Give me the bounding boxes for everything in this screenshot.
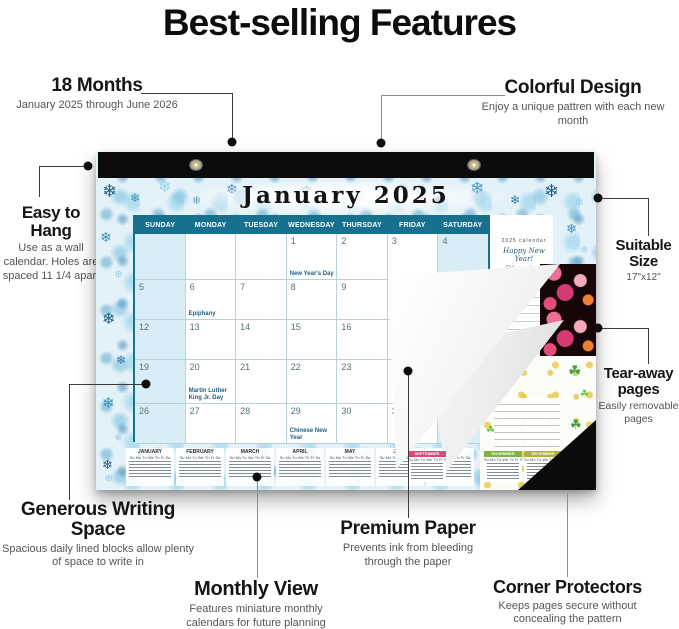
callout-premium-paper: Premium Paper Prevents ink from bleeding… [328, 519, 488, 569]
day-number: 20 [190, 362, 200, 372]
snowflake-icon: ❄ [104, 474, 113, 485]
day-cell: 21 [236, 360, 287, 404]
callout-heading: Monthly View [172, 579, 340, 600]
day-cell: 27 [186, 404, 237, 444]
connector-dot [594, 194, 603, 203]
day-cell: 29Chinese New Year [287, 404, 338, 444]
connector-line [381, 95, 505, 96]
day-number: 16 [341, 322, 351, 332]
snowflake-icon: ❄ [566, 222, 577, 235]
mini-day-row: Su Mo Tu We Th Fr Sa [326, 455, 374, 460]
day-number: 19 [139, 362, 149, 372]
month-title: January 2025 [96, 182, 596, 209]
mini-number-grid [329, 461, 371, 478]
day-number: 3 [392, 236, 397, 246]
callout-corner-protectors: Corner Protectors Keeps pages secure wit… [485, 578, 650, 627]
connector-line [69, 384, 146, 385]
mini-month: NOVEMBERSu Mo Tu We Th Fr Sa [484, 450, 522, 482]
mini-month: MARCHSu Mo Tu We Th Fr Sa [226, 448, 274, 486]
day-cell: 5 [135, 280, 186, 320]
day-number: 15 [291, 322, 301, 332]
day-header-row: SUNDAYMONDAYTUESDAYWEDNESDAYTHURSDAYFRID… [135, 217, 488, 234]
callout-heading: Suitable Size [608, 238, 679, 269]
day-cell: 16 [337, 320, 388, 360]
connector-line [567, 493, 568, 577]
day-cell: 9 [337, 280, 388, 320]
mini-number-grid [179, 461, 221, 478]
day-cell: 7 [236, 280, 287, 320]
day-header: THURSDAY [337, 217, 387, 234]
grommet-right-icon [467, 159, 481, 171]
callout-subtext: Easily removable pages [598, 400, 679, 426]
mini-day-row: Su Mo Tu We Th Fr Sa [276, 455, 324, 460]
connector-dot [228, 138, 237, 147]
connector-line [381, 95, 382, 143]
holiday-label: Martin Luther King Jr. Day [189, 388, 235, 401]
day-cell: 1New Year's Day [287, 234, 338, 280]
mini-month: MAYSu Mo Tu We Th Fr Sa [326, 448, 374, 486]
snowflake-icon: ❄ [580, 246, 588, 256]
day-number: 14 [240, 322, 250, 332]
mini-day-row: Su Mo Tu We Th Fr Sa [126, 455, 174, 460]
mini-calendar-strip-pink: SEPTEMBERSu Mo Tu We Th Fr Sa [408, 450, 446, 482]
clover-icon: ☘ [580, 390, 589, 400]
connector-dot [84, 162, 93, 171]
mini-number-grid [229, 461, 271, 478]
connector-dot [253, 473, 262, 482]
day-cell: 8 [287, 280, 338, 320]
connector-line [39, 166, 40, 197]
callout-heading: Easy to Hang [2, 204, 100, 239]
mini-day-row: Su Mo Tu We Th Fr Sa [226, 455, 274, 460]
day-number: 5 [139, 282, 144, 292]
day-cell: 26 [135, 404, 186, 444]
day-header: SUNDAY [135, 217, 185, 234]
day-cell: 23 [337, 360, 388, 404]
day-number: 6 [190, 282, 195, 292]
day-cell [236, 234, 287, 280]
connector-dot [594, 324, 603, 333]
snowflake-icon: ❄ [102, 312, 115, 328]
snowflake-icon: ❄ [100, 230, 112, 244]
clover-icon: ☘ [570, 418, 582, 431]
callout-heading: Premium Paper [328, 519, 488, 539]
calendar-page: ❄❄❄❄❄❄❄❄❄❄❄❄❄❄❄❄❄❄❄❄❄❄❄❄❄ January 2025 S… [96, 152, 596, 490]
day-cell: 14 [236, 320, 287, 360]
day-number: 22 [291, 362, 301, 372]
mini-month: APRILSu Mo Tu We Th Fr Sa [276, 448, 324, 486]
callout-heading: Tear-away pages [598, 366, 679, 397]
day-number: 26 [139, 406, 149, 416]
day-cell: 28 [236, 404, 287, 444]
connector-line [39, 166, 88, 167]
callout-heading: Generous Writing Space [0, 500, 196, 540]
snowflake-icon: ❄ [102, 458, 113, 471]
snowflake-icon: ❄ [116, 354, 126, 366]
callout-subtext: Use as a wall calendar. Holes are spaced… [2, 242, 100, 283]
callout-subtext: Enjoy a unique pattren with each new mon… [478, 101, 668, 129]
day-number: 12 [139, 322, 149, 332]
revealed-page-ruled-area [494, 398, 560, 450]
callout-subtext: Features miniature monthly calendars for… [172, 603, 340, 629]
connector-line [648, 198, 649, 236]
callout-18-months: 18 Months January 2025 through June 2026 [8, 76, 186, 113]
callout-suitable-size: Suitable Size 17"x12" [608, 238, 679, 285]
day-number: 21 [240, 362, 250, 372]
mini-day-row: Su Mo Tu We Th Fr Sa [408, 457, 446, 462]
notes-line: Happy New Year! [495, 247, 553, 263]
callout-tear-away-pages: Tear-away pages Easily removable pages [598, 366, 679, 426]
page-title: Best-selling Features [0, 2, 679, 44]
day-cell: 22 [287, 360, 338, 404]
mini-month: SEPTEMBERSu Mo Tu We Th Fr Sa [408, 450, 446, 482]
hanging-strip [98, 152, 594, 178]
day-cell [135, 234, 186, 280]
callout-subtext: Spacious daily lined blocks allow plenty… [0, 543, 196, 571]
day-cell: 15 [287, 320, 338, 360]
connector-line [598, 328, 648, 329]
day-cell: 6Epiphany [186, 280, 237, 320]
day-header: FRIDAY [387, 217, 437, 234]
callout-subtext: Prevents ink from bleeding through the p… [328, 542, 488, 570]
infographic: Best-selling Features 18 Months January … [0, 0, 679, 629]
callout-subtext: 17"x12" [608, 272, 679, 285]
connector-dot [404, 367, 413, 376]
connector-line [598, 198, 648, 199]
callout-heading: Colorful Design [478, 78, 668, 98]
connector-line [232, 93, 233, 142]
mini-month: FEBRUARYSu Mo Tu We Th Fr Sa [176, 448, 224, 486]
mini-number-grid [129, 461, 171, 478]
day-number: 30 [341, 406, 351, 416]
callout-generous-writing-space: Generous Writing Space Spacious daily li… [0, 500, 196, 570]
callout-subtext: Keeps pages secure without concealing th… [485, 600, 650, 628]
day-cell: 2 [337, 234, 388, 280]
clover-icon: ☘ [486, 426, 495, 436]
day-header: MONDAY [185, 217, 235, 234]
mini-month: JANUARYSu Mo Tu We Th Fr Sa [126, 448, 174, 486]
callout-monthly-view: Monthly View Features miniature monthly … [172, 579, 340, 629]
day-cell [186, 234, 237, 280]
day-number: 13 [190, 322, 200, 332]
connector-line [69, 384, 70, 500]
day-header: TUESDAY [236, 217, 286, 234]
mini-number-grid [411, 463, 443, 480]
day-number: 7 [240, 282, 245, 292]
mini-number-grid [487, 463, 519, 480]
day-cell: 20Martin Luther King Jr. Day [186, 360, 237, 404]
mini-day-row: Su Mo Tu We Th Fr Sa [484, 457, 522, 462]
day-number: 29 [291, 406, 301, 416]
mini-day-row: Su Mo Tu We Th Fr Sa [176, 455, 224, 460]
day-number: 23 [341, 362, 351, 372]
snowflake-icon: ❄ [114, 434, 122, 444]
snowflake-icon: ❄ [102, 396, 115, 411]
day-header: WEDNESDAY [286, 217, 336, 234]
notes-line: 2025 calendar [495, 238, 553, 244]
callout-subtext: January 2025 through June 2026 [8, 99, 186, 113]
day-number: 2 [341, 236, 346, 246]
connector-line [141, 93, 232, 94]
grommet-left-icon [189, 159, 203, 171]
holiday-label: Epiphany [189, 311, 235, 318]
day-cell: 13 [186, 320, 237, 360]
connector-line [408, 371, 409, 518]
day-number: 28 [240, 406, 250, 416]
connector-line [257, 477, 258, 578]
connector-dot [377, 139, 386, 148]
snowflake-icon: ❄ [114, 270, 123, 281]
mini-number-grid [279, 461, 321, 478]
day-cell: 30 [337, 404, 388, 444]
day-cell: 12 [135, 320, 186, 360]
holiday-label: New Year's Day [290, 271, 336, 278]
callout-colorful-design: Colorful Design Enjoy a unique pattren w… [478, 78, 668, 128]
clover-icon: ☘ [568, 364, 581, 379]
day-number: 9 [341, 282, 346, 292]
day-header: SATURDAY [438, 217, 488, 234]
day-number: 4 [442, 236, 447, 246]
day-number: 1 [291, 236, 296, 246]
connector-dot [142, 380, 151, 389]
day-number: 8 [291, 282, 296, 292]
connector-line [648, 328, 649, 364]
callout-heading: Corner Protectors [485, 578, 650, 597]
day-number: 27 [190, 406, 200, 416]
callout-easy-to-hang: Easy to Hang Use as a wall calendar. Hol… [2, 204, 100, 284]
holiday-label: Chinese New Year [290, 428, 336, 441]
